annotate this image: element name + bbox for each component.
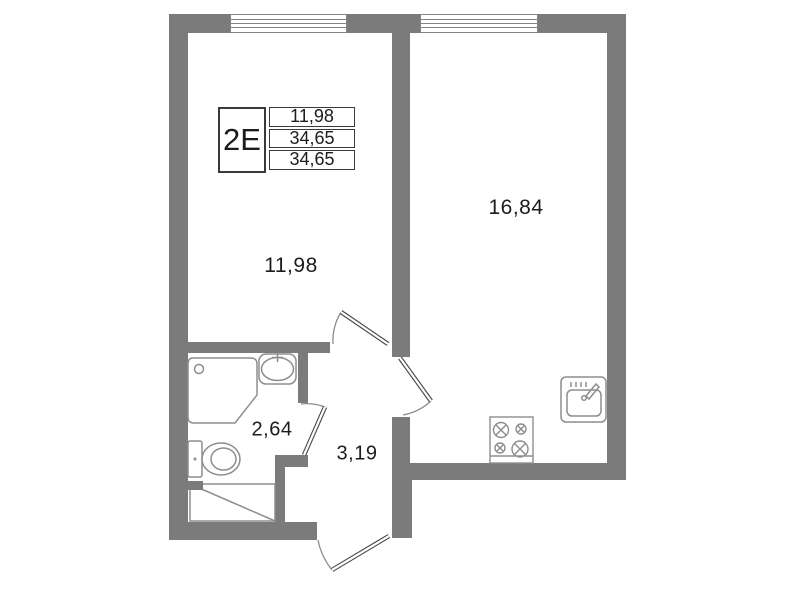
wall-hall-left xyxy=(275,467,285,522)
window-icon-kitchen xyxy=(420,14,538,33)
wall-bathroom-right xyxy=(298,353,308,403)
shower-cabin-icon xyxy=(188,358,257,423)
kitchen-sink-icon xyxy=(561,377,606,422)
unit-stats: 11,98 34,65 34,65 xyxy=(269,107,355,173)
door-swing-icon-kitchen xyxy=(400,358,431,415)
wall-top-segment-a xyxy=(169,14,230,33)
wall-right xyxy=(607,14,626,480)
unit-stat-row: 34,65 xyxy=(269,150,355,170)
door-swing-icon-living xyxy=(333,312,388,344)
area-label-bathroom: 2,64 xyxy=(252,419,293,442)
area-label-living: 11,98 xyxy=(264,254,318,278)
wall-bathroom-stub xyxy=(275,455,308,467)
wall-interior-upper xyxy=(392,33,410,357)
window-icon-living xyxy=(230,14,347,33)
area-label-kitchen: 16,84 xyxy=(488,196,543,220)
floor-plan: 2Е 11,98 34,65 34,65 11,98 16,84 2,64 3,… xyxy=(0,0,799,600)
wall-bathroom-top xyxy=(188,342,330,353)
door-swing-icon-entrance xyxy=(318,536,389,570)
wall-kitchen-bottom xyxy=(392,463,626,480)
wall-interior-middle xyxy=(392,417,410,463)
wall-interior-lower xyxy=(392,480,412,538)
washbasin-icon xyxy=(259,353,296,384)
wall-bottom-left xyxy=(169,522,317,540)
unit-stat-row: 34,65 xyxy=(269,129,355,149)
area-label-hallway: 3,19 xyxy=(337,443,378,466)
door-swing-icon-bathroom xyxy=(301,404,325,455)
unit-type-label: 2Е xyxy=(218,107,266,173)
washing-machine-area-icon xyxy=(188,481,275,521)
wall-left xyxy=(169,14,188,540)
unit-stat-row: 11,98 xyxy=(269,107,355,127)
stove-icon xyxy=(490,417,533,463)
toilet-icon xyxy=(188,441,240,477)
unit-info-table: 2Е 11,98 34,65 34,65 xyxy=(218,107,355,173)
wall-top-segment-b xyxy=(347,14,420,33)
